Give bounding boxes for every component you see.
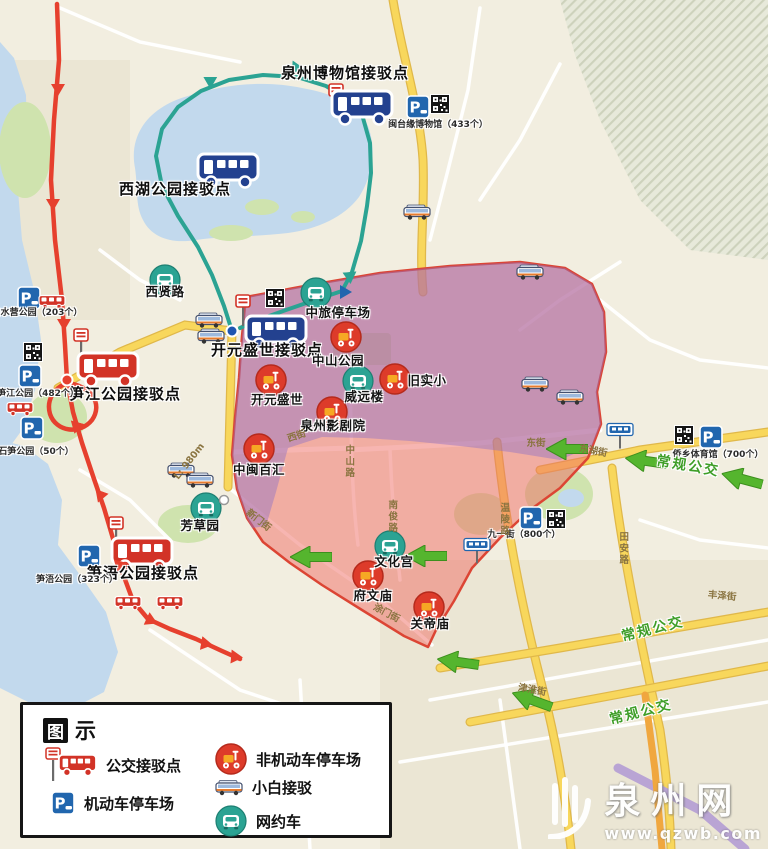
quanzhou-transit-map: P P P P P P P: [0, 0, 768, 849]
legend-item-motor-parking: P 机动车停车场: [51, 791, 174, 815]
lake-island: [245, 199, 279, 215]
legend-item-label: 小白接驳: [252, 777, 312, 798]
riverside-green: [0, 102, 51, 198]
legend-title-box: 图: [43, 718, 68, 743]
legend-item-non-motor-parking: 非机动车停车场: [215, 743, 361, 775]
legend-item-bus-shuttle-point: 公交接驳点: [45, 747, 181, 783]
legend-item-label: 机动车停车场: [84, 793, 174, 814]
legend-item-label: 网约车: [256, 811, 301, 832]
xiaobai-minibus-icon: [215, 779, 243, 796]
legend-title-text: 示: [75, 715, 96, 745]
east-lake-pond: [558, 489, 584, 507]
watermark-site-name: 泉州网: [604, 772, 742, 824]
qzwb-logo-icon: [548, 777, 598, 839]
watermark-url: www.qzwb.com: [604, 824, 762, 843]
legend-item-xiaobai-shuttle: 小白接驳: [215, 777, 312, 798]
parking-icon: P: [51, 791, 75, 815]
legend-item-label: 非机动车停车场: [256, 749, 361, 770]
lake-island: [291, 211, 315, 223]
bus-shuttle-point-icon: [45, 747, 97, 783]
scooter-parking-icon: [215, 743, 247, 775]
legend-item-label: 公交接驳点: [106, 755, 181, 776]
lake-peninsula: [209, 225, 253, 241]
legend-title: 图 示: [43, 715, 96, 745]
ride-hailing-icon: [215, 805, 247, 837]
legend-item-ride-hailing: 网约车: [215, 805, 301, 837]
watermark-text: 泉州网 www.qzwb.com: [604, 772, 762, 843]
legend: 图 示 公交接驳点 P 机动车停车场 非机动车停车场: [20, 702, 392, 838]
watermark: 泉州网 www.qzwb.com: [548, 772, 762, 843]
svg-text:P: P: [55, 795, 66, 813]
